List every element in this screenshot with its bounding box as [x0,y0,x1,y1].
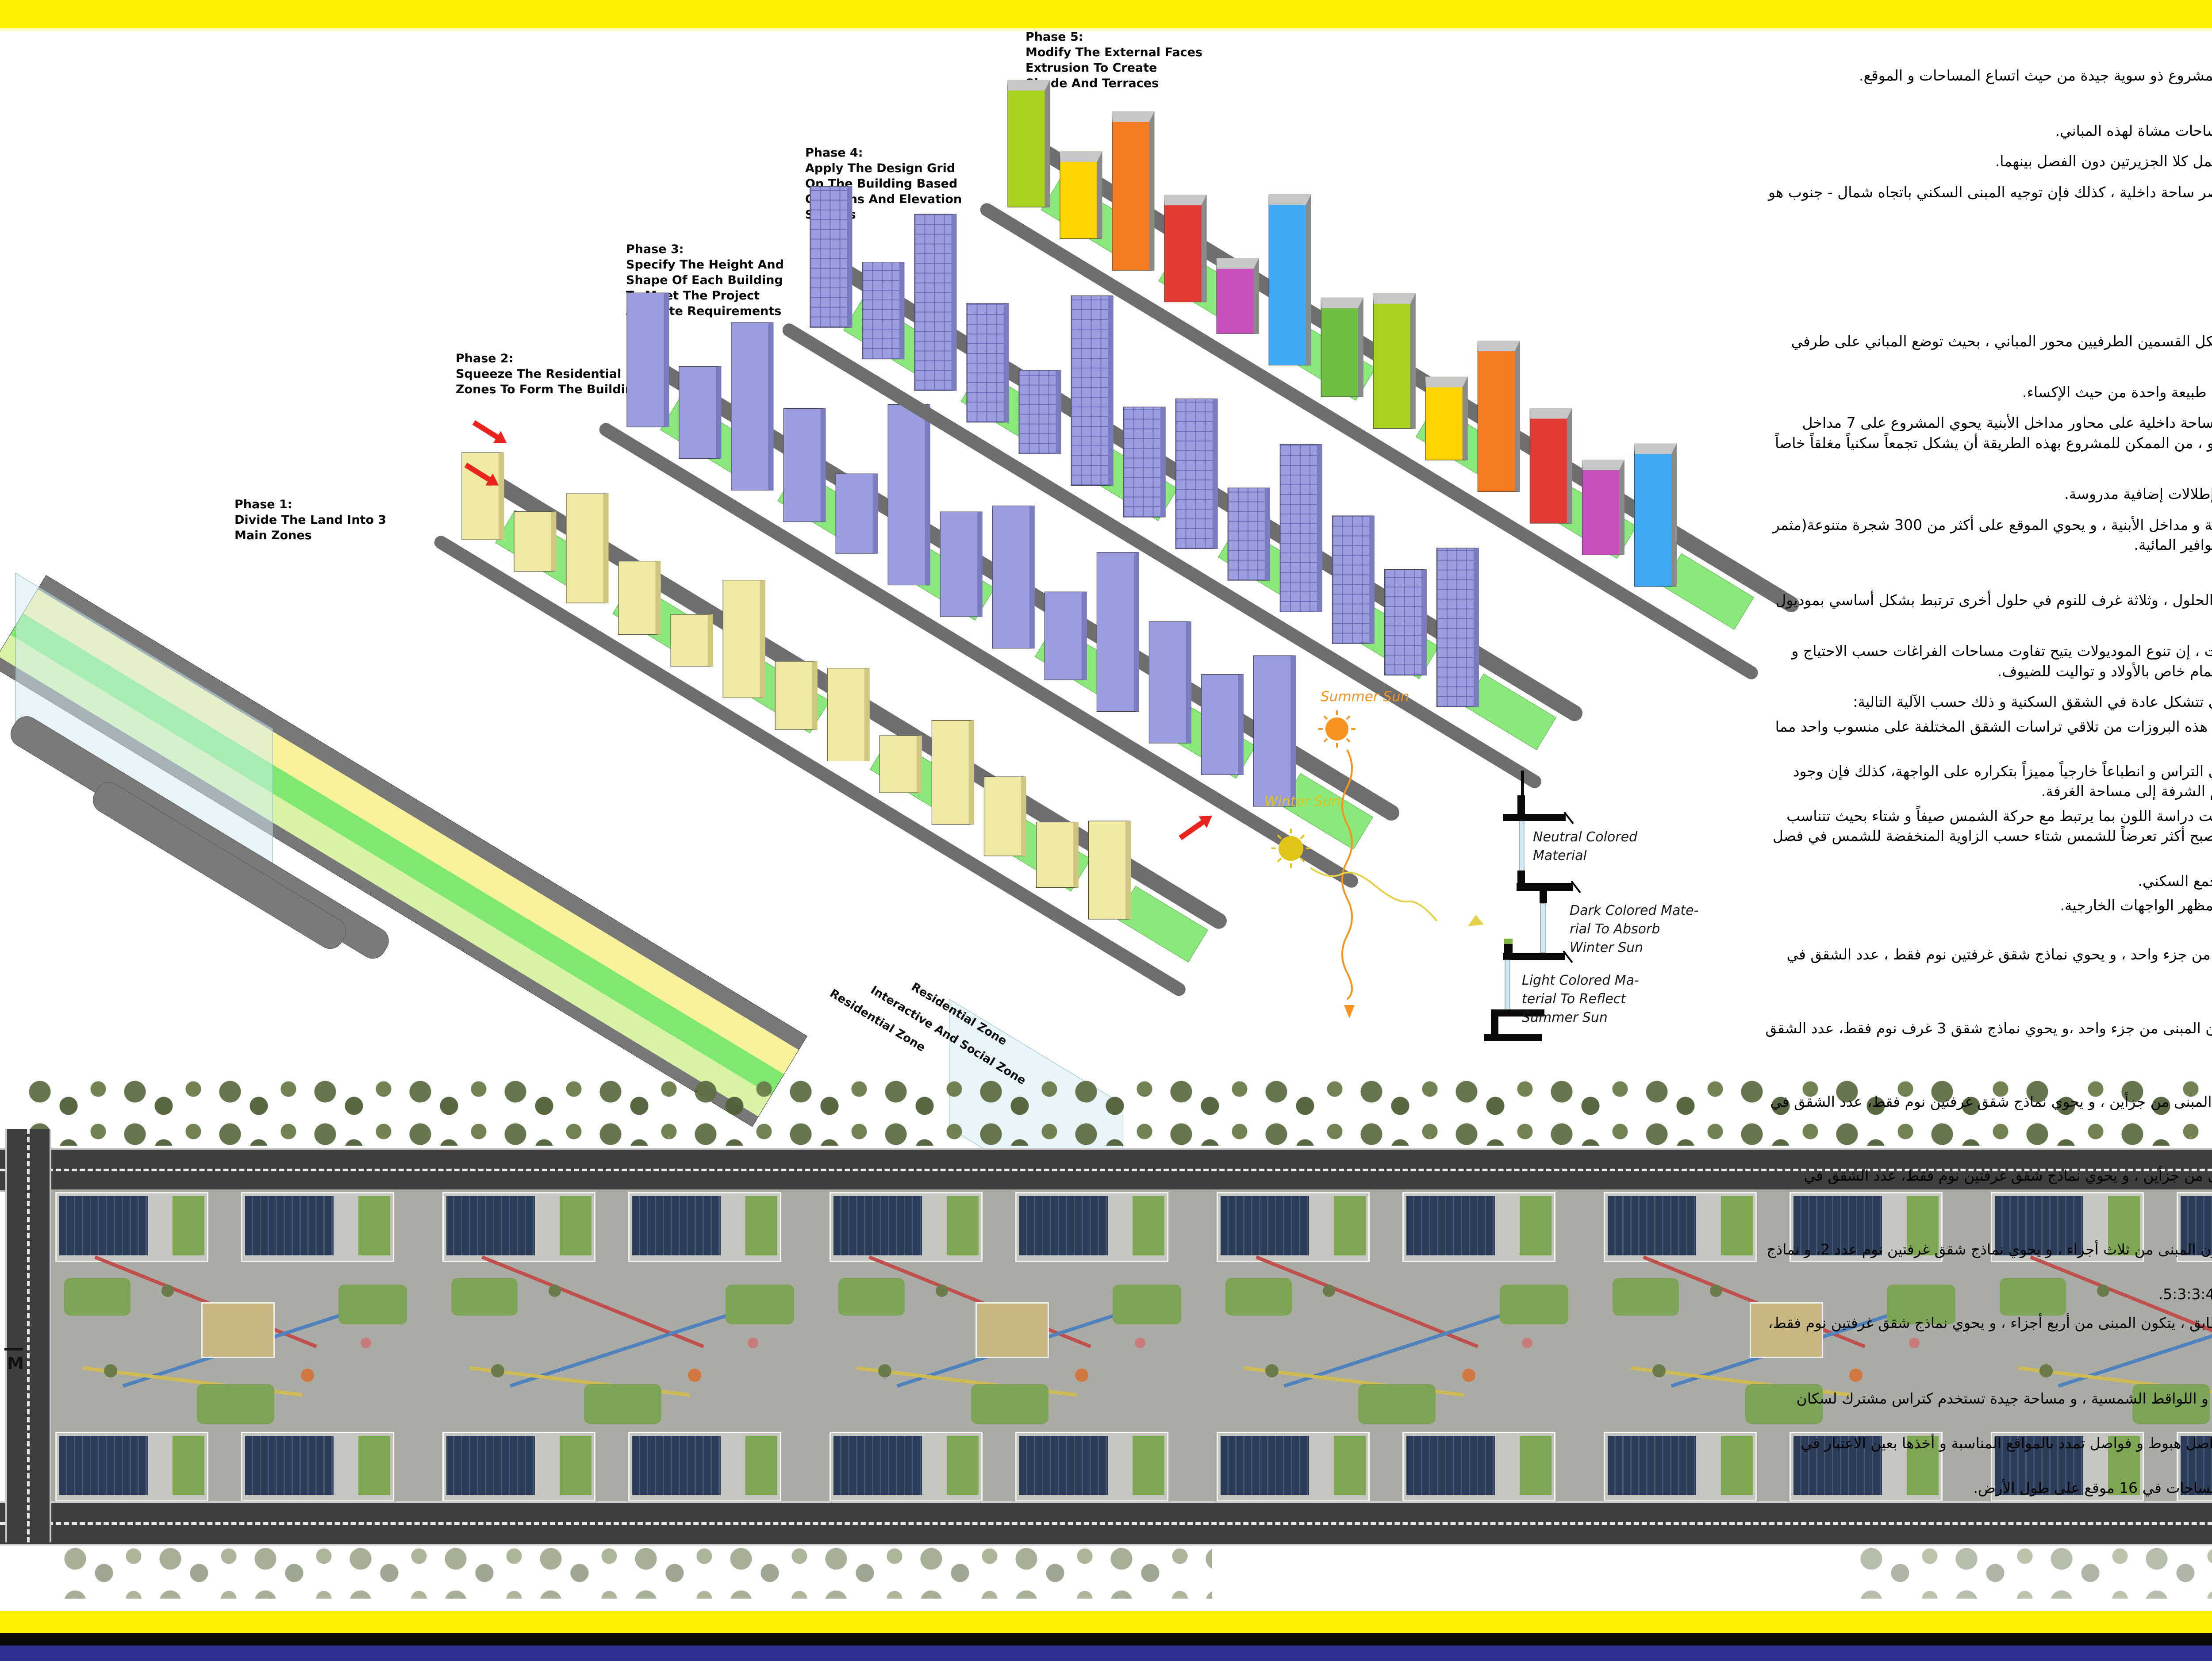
building-block [940,512,983,617]
roof-garden [173,1196,204,1255]
residential-building [829,1432,983,1502]
garden-bed [1113,1285,1181,1324]
building-block [967,303,1009,422]
building-block [984,777,1026,856]
building-block [1071,295,1114,486]
memo-model-module: موديول الإنشاء هو : 5:3:3:5:5:3:3:5. [1764,1136,2212,1157]
residential-building [1604,1192,1757,1262]
solar-roof [1608,1436,1696,1495]
solar-roof [833,1436,922,1495]
building-block [1332,516,1375,644]
solar-roof [446,1196,535,1255]
tree-dot [878,1364,891,1377]
memo-paragraph: تشكل هذه البروزات تراسات ذات أبعاد واسعة… [1764,761,2212,802]
solar-roof [1221,1196,1309,1255]
tree-dot [1652,1364,1666,1377]
winter-sun-ray [1310,868,1437,921]
sport-court [201,1302,275,1358]
roof-garden [745,1436,777,1495]
memo-bullet: • أخذ بعين الاعتبار عند تصميم المباني تن… [1764,484,2212,504]
tree-dot [936,1285,948,1297]
memo-paragraph: و من حيث الشكل فإن هذه البروزات القطرية … [1764,806,2212,867]
memo-paragraph: إن علاقة موديول الكتل مع بعضها البعض أتا… [1764,1433,2212,1473]
solar-roof [833,1196,922,1255]
residential-building [1015,1432,1168,1502]
building-block [1112,111,1155,271]
summer-sun-label: Summer Sun [1321,689,1409,705]
memo-bullet: • يتكون المشروع من أربعة عشر كتلة سكنية … [1764,413,2212,473]
memo-title: المذكرة التوضيحية لأسس تصميم المشروع [1764,41,2212,61]
residential-building [1217,1432,1370,1502]
summer-arrowhead-icon [1344,1005,1355,1018]
tree-dot [104,1364,117,1377]
garden-bed [971,1384,1048,1424]
memo-bullet: • يتطلب تصميم المشاريع السكنية توفير أكب… [1764,121,2212,141]
residential-building [1217,1192,1370,1262]
pink-dot [361,1338,371,1348]
tree-dot [549,1285,561,1297]
memo-bullet: • ترتبط واجهات المباني الشرقية و الغربية… [1764,382,2212,403]
building-block [992,506,1035,648]
memo-totals: عدد الشقق الإجمالي 600 شقة سكنية، 204 شق… [1764,1364,2212,1384]
material-line: Summer Sun [1522,1009,1639,1027]
winter-sun-icon [1271,829,1310,868]
building-block [679,366,721,459]
building-block [1060,151,1102,239]
residential-building [1402,1432,1555,1502]
roof-garden [1133,1436,1164,1495]
solar-roof [1221,1436,1309,1495]
building-block [810,186,852,328]
orange-dot [1075,1369,1088,1382]
building-block [1097,552,1139,712]
building-block [1321,298,1363,397]
sport-court [975,1302,1049,1358]
material-line: Light Colored Ma- [1522,971,1639,990]
building-cluster [1212,1189,1593,1501]
presentation-board: Phase 1: Divide The Land Into 3 Main Zon… [0,0,2212,1661]
building-block [1228,488,1270,581]
memo-model-module: موديول الإنشاء هو: 5:3:3:5 [1764,989,2212,1009]
summer-sun-icon [1318,710,1356,748]
building-block [914,214,957,391]
phase-5-label: Phase 5: Modify The External Faces Extru… [1025,29,1202,91]
material-label-light: Light Colored Ma- terial To Reflect Summ… [1522,971,1639,1027]
memo-bullet: • انطلقت الفكرة من تقسيم عرض الأرض إلى ث… [1764,331,2212,372]
building-block [1149,621,1191,744]
garden-bed [338,1285,407,1324]
solar-roof [1019,1436,1108,1495]
memo-bullet: • تتألف مباني المشروع من 6 نماذج مختلفة … [1764,641,2212,681]
material-line: terial To Reflect [1522,990,1639,1009]
memo-model: • E-8-12-10 عددها 5 كتل في المشروع ، يحو… [1764,1239,2212,1280]
material-line: rial To Absorb [1570,920,1698,939]
memo-bullet: • إن كلاً من الواجهتين الشمالية و الجنوب… [1764,692,2212,712]
memo-arch-heading: الدراسة على المستوى المعماري : [1764,566,2212,586]
building-block [671,614,713,667]
building-block [1019,370,1061,454]
building-block [862,262,904,359]
roof-garden [947,1196,979,1255]
sun-study-diagram: Summer Sun Winter Sun [1194,655,1747,1119]
phase-line: Shade And Terraces [1025,76,1202,91]
building-block [1007,80,1050,207]
memo-bullet: • و بالنسبة لعناصر الفرش العمراني في الم… [1764,515,2212,555]
bottom-navy-bar [0,1646,2212,1661]
building-cluster [825,1189,1206,1501]
residential-building [628,1432,781,1502]
pink-dot [1522,1338,1532,1348]
summer-sun-ray [1342,750,1352,999]
solar-roof [1406,1196,1495,1255]
building-block [1373,293,1416,429]
memo-urban-heading: الدراسة على المستوى العمراني: [1764,96,2212,116]
building-block [1175,399,1218,549]
south-road [0,1501,2212,1546]
building-block [1269,194,1311,365]
material-line: Neutral Colored [1533,828,1637,847]
pink-dot [1135,1338,1145,1348]
phase-line: Apply The Design Grid [805,161,962,176]
memo-bullet: • من الملاحظ أن العرض الضيق لأرض المشروع… [1764,182,2212,222]
phase-line: Main Zones [234,528,386,543]
residential-building [1604,1432,1757,1502]
building-block [836,474,878,554]
orange-dot [688,1369,701,1382]
building-block [1036,822,1079,888]
phase-title: Phase 4: [805,145,962,161]
roof-garden [560,1436,591,1495]
memo-paragraph: تتميز العديد من المكعبات البارزة في كل م… [1764,871,2212,891]
building-block [1634,443,1677,587]
building-block [1280,444,1322,612]
road-centerline [27,1129,30,1542]
phase-title: Phase 5: [1025,29,1202,45]
material-line: Winter Sun [1570,939,1698,957]
building-block [1478,341,1520,492]
road-centerline [0,1522,2212,1525]
phase-title: Phase 2: [456,351,649,366]
solar-roof [632,1196,721,1255]
section-marker-m-left: M [7,1354,24,1373]
roof-garden [358,1196,390,1255]
material-line: Dark Colored Mate- [1570,901,1698,920]
solar-roof [1406,1436,1495,1495]
memo-models-intro: تصنف مباني المشروع حسب الموديول و الارتف… [1764,920,2212,940]
solar-roof [245,1436,334,1495]
building-block [783,408,826,522]
roof-garden [1721,1436,1753,1495]
phase-line: Divide The Land Into 3 [234,512,386,528]
roof-garden [745,1196,777,1255]
memo-bullet: • أخذ بعين الاعتبار أن جزيرتي المشروع ذا… [1764,151,2212,172]
roof-garden [1520,1436,1551,1495]
memo-paragraph: درست مواقع لفتحات واسعة من أجل الإنارة و… [1764,1478,2212,1498]
building-block [566,494,609,603]
roof-garden [1520,1196,1551,1255]
solar-roof [446,1436,535,1495]
garden-bed [64,1278,131,1316]
phase-title: Phase 1: [234,497,386,512]
memo-model: • F-10-12-8-6 عددها 1 كتلة في المشروع ، … [1764,1313,2212,1353]
tree-dot [1323,1285,1335,1297]
phase-1-label: Phase 1: Divide The Land Into 3 Main Zon… [234,497,386,543]
building-block [1164,195,1207,302]
memo-principles-note: ليصبح توجيه المباني باتجاه شمال جنوب يحص… [1764,300,2212,321]
material-line: Material [1533,847,1637,865]
building-block [1530,408,1572,524]
building-block [932,720,974,825]
tree-dot [1265,1364,1279,1377]
roof-garden [1334,1196,1366,1255]
winter-arrowhead-icon [1468,915,1484,926]
material-label-dark: Dark Colored Mate- rial To Absorb Winter… [1570,901,1698,957]
red-arrow-icon [472,420,499,440]
tree-dot [1710,1285,1722,1297]
garden-bed [1225,1278,1292,1316]
memo-paragraph: تتراوح البروزات في كل موديول بين القيم ا… [1764,717,2212,757]
garden-bed [1613,1278,1679,1316]
roof-garden [1334,1436,1366,1495]
roof-garden [947,1436,979,1495]
memo-paragraph: أيضاً إن وجود الشفرات المعدنية عند سقف ك… [1764,895,2212,916]
memo-paragraph: درست أسطح المباني بحيث تؤمن موقعاً منظما… [1764,1389,2212,1429]
memo-model: • A-12 عددها كتلتين في المشروع ، يحوي ال… [1764,944,2212,985]
building-block [731,322,774,491]
phase-line: Modify The External Faces [1025,45,1202,60]
phase-line: Extrusion To Create [1025,60,1202,76]
memo-model-module: موديول الإنشاء هو : 5:3:3:5:5:3:3:5. [1764,1210,2212,1231]
memo-model-module: موديول الإنشاء هو : 5:3:4:3:4:3:4:3:5. [1764,1063,2212,1083]
building-block [879,736,922,793]
solar-roof [1608,1196,1696,1255]
garden-bed [197,1384,274,1424]
garden-bed [584,1384,661,1424]
bottom-black-bar [0,1633,2212,1646]
building-block [1582,460,1624,555]
building-block [1425,377,1468,460]
memo-principle: □ و ساحات متكررة تحقق انفتاح و إطلالة لل… [1764,276,2212,296]
garden-bed [1500,1285,1568,1324]
residential-building [829,1192,983,1262]
solar-roof [59,1196,148,1255]
garden-bed [726,1285,794,1324]
roof-garden [1133,1196,1164,1255]
garden-bed [838,1278,905,1316]
residential-building [442,1192,595,1262]
design-memo: المذكرة التوضيحية لأسس تصميم المشروع يمت… [1764,41,2212,1502]
residential-building [241,1192,394,1262]
building-cluster [51,1189,431,1501]
residential-building [1015,1192,1168,1262]
memo-principles-intro: لذلك فإن التصميم العمراني للمشروع اعتمد … [1764,227,2212,247]
pink-dot [748,1338,758,1348]
building-block [723,580,765,698]
building-block [827,668,870,761]
memo-intro: يمتد المشروع على رقعة أرض بطول يتجاوز 50… [1764,65,2212,86]
residential-building [628,1192,781,1262]
building-block [775,661,818,730]
roof-garden [1721,1196,1753,1255]
top-frame-bar [0,0,2212,28]
west-road [5,1129,51,1542]
residential-building [241,1432,394,1502]
phase-line: Squeeze The Residential [456,366,649,382]
solar-roof [632,1436,721,1495]
memo-bullet: • أخذ بعين الاعتبار عند تصميم المباني إع… [1764,590,2212,630]
phase-title: Phase 3: [626,242,784,257]
residential-building [1402,1192,1555,1262]
orange-dot [1462,1369,1475,1382]
solar-roof [245,1196,334,1255]
memo-model: • B-12-12 عددها كتلة واحدة في المشروع ، … [1764,1018,2212,1059]
building-block [514,511,556,572]
tree-dot [491,1364,504,1377]
building-cluster [438,1189,818,1501]
residential-building [442,1432,595,1502]
roof-garden [358,1436,390,1495]
building-block [888,404,930,585]
building-block [1123,407,1166,518]
memo-model: • D-8-12 عددها 4 كتل في المشروع ، يحوي ا… [1764,1166,2212,1206]
winter-sun-label: Winter Sun [1264,794,1340,809]
phase-2-label: Phase 2: Squeeze The Residential Zones T… [456,351,649,397]
building-block [1217,258,1259,334]
tree-row [62,1546,1212,1599]
memo-model-module: موديول الإنشاء هو : 5:3:3:4:4:3:3:3:3:4:… [1764,1284,2212,1304]
garden-bed [1358,1384,1436,1424]
building-block [1045,592,1087,680]
roof-garden [560,1196,591,1255]
memo-model: • C-8-10 عددها كتلة واحدة في المشروع ، ي… [1764,1092,2212,1132]
garden-bed [451,1278,518,1316]
memo-principle: □ محور رئيسي شمال جنوب تفتح عليه مداخل ا… [1764,251,2212,272]
residential-building [55,1432,208,1502]
tree-row [1858,1546,2212,1599]
building-block [626,293,669,427]
orange-dot [301,1369,314,1382]
building-block [1088,821,1131,919]
material-label-neutral: Neutral Colored Material [1533,828,1637,865]
phase-line: Specify The Height And [626,257,784,272]
phase-line: Shape Of Each Building [626,272,784,288]
solar-roof [59,1436,148,1495]
roof-garden [173,1436,204,1495]
building-block [618,561,661,635]
residential-building [55,1192,208,1262]
solar-roof [1019,1196,1108,1255]
tree-dot [161,1285,174,1297]
